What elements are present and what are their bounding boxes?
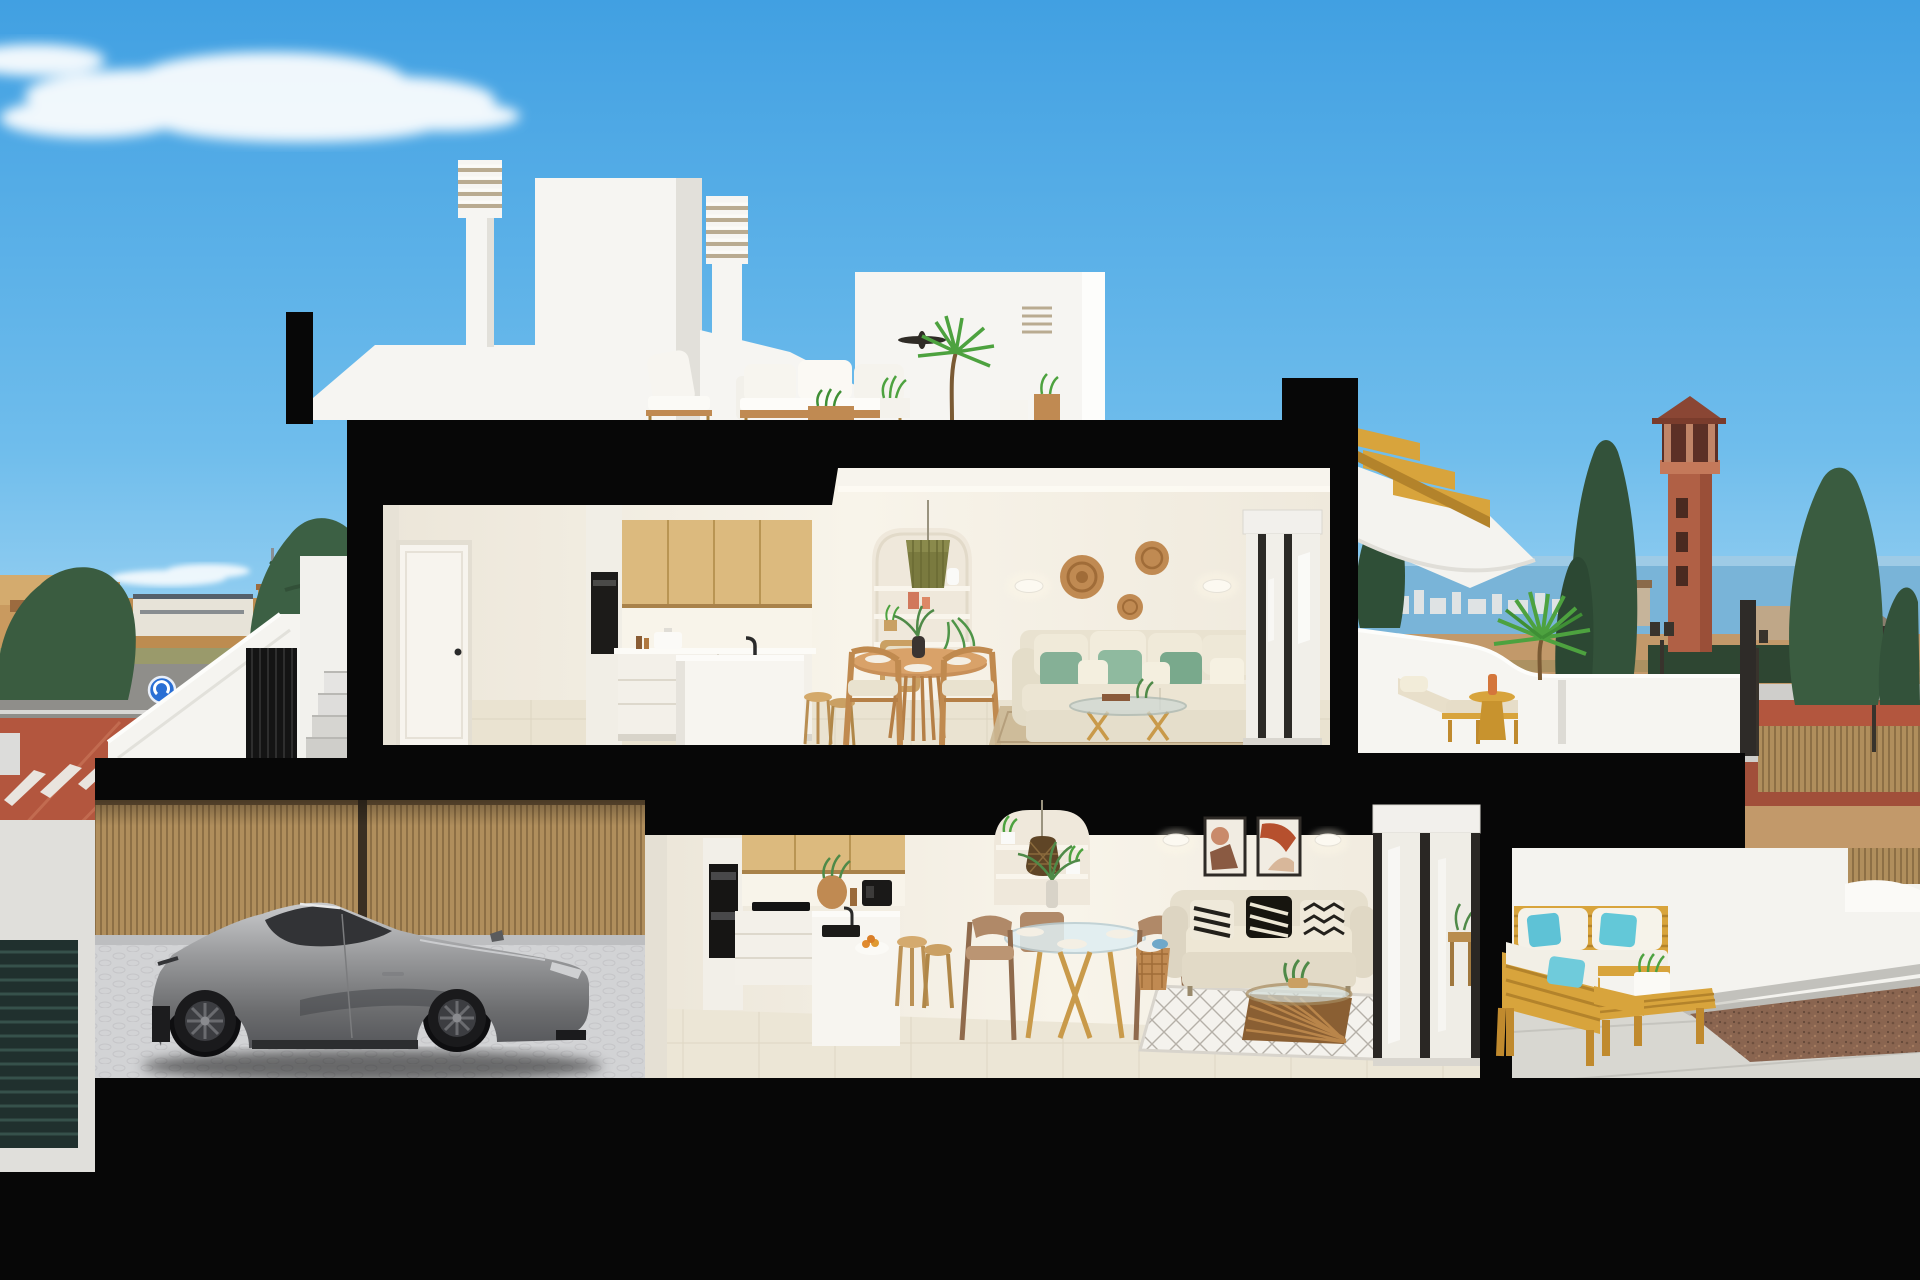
lower-floor: Ground floor: kitchen, dining area and l…: [645, 800, 1480, 1080]
terrace-end-post: [1740, 600, 1756, 756]
bw-cushions: [1190, 896, 1344, 940]
lower-island: [812, 908, 900, 1046]
street-sign-panel: [0, 733, 20, 775]
background-fence: [1758, 726, 1920, 792]
garage-side-gate: [0, 940, 78, 1148]
door-handle: [455, 649, 462, 656]
left-parapet-cut: [286, 312, 313, 424]
rear-wheel: [174, 990, 236, 1052]
stair-cut: [1282, 378, 1358, 424]
roof-vent: [1022, 300, 1052, 338]
right-wall-cut-upper: [1330, 420, 1358, 756]
upper-glass-door: [1243, 510, 1322, 746]
lower-sofa: [1162, 890, 1376, 996]
garage-side-wall: [0, 820, 95, 1172]
throw-basket: [1136, 939, 1170, 990]
cross-section-render: Blue sky with white clouds Town skyline,…: [0, 0, 1920, 1280]
green-cushion: [1040, 652, 1082, 688]
lower-niche: [994, 800, 1090, 905]
neighbor-wall: [1845, 848, 1920, 912]
upper-door: [396, 540, 472, 745]
lower-terrace: Ground-floor terrace with golden wood ga…: [1500, 848, 1920, 1080]
ground-band: [0, 1078, 1920, 1280]
front-wheel: [428, 989, 486, 1047]
upper-cabinets: [622, 520, 812, 606]
upper-floor: Upper floor: kitchen, dining area and li…: [383, 468, 1330, 748]
left-wall-cut: [347, 420, 383, 760]
bottle: [1488, 674, 1497, 695]
coffee-machine: [862, 880, 892, 906]
kitchen-island: [676, 655, 804, 748]
louvered-gate: [246, 648, 297, 758]
lower-glass-doors: [1373, 805, 1480, 1066]
sink: [822, 925, 860, 937]
chimney-b: [706, 196, 748, 347]
cooktop: [752, 902, 810, 911]
